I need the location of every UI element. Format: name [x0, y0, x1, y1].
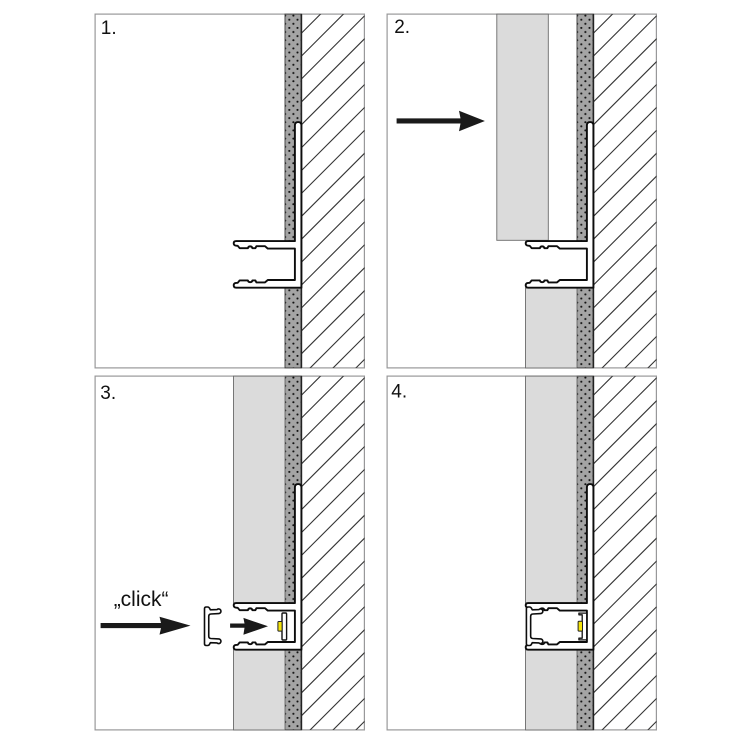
- svg-text:2.: 2.: [394, 17, 410, 38]
- svg-text:„click“: „click“: [114, 588, 169, 611]
- svg-text:1.: 1.: [101, 18, 117, 39]
- svg-text:4.: 4.: [391, 381, 407, 402]
- svg-text:3.: 3.: [100, 383, 116, 404]
